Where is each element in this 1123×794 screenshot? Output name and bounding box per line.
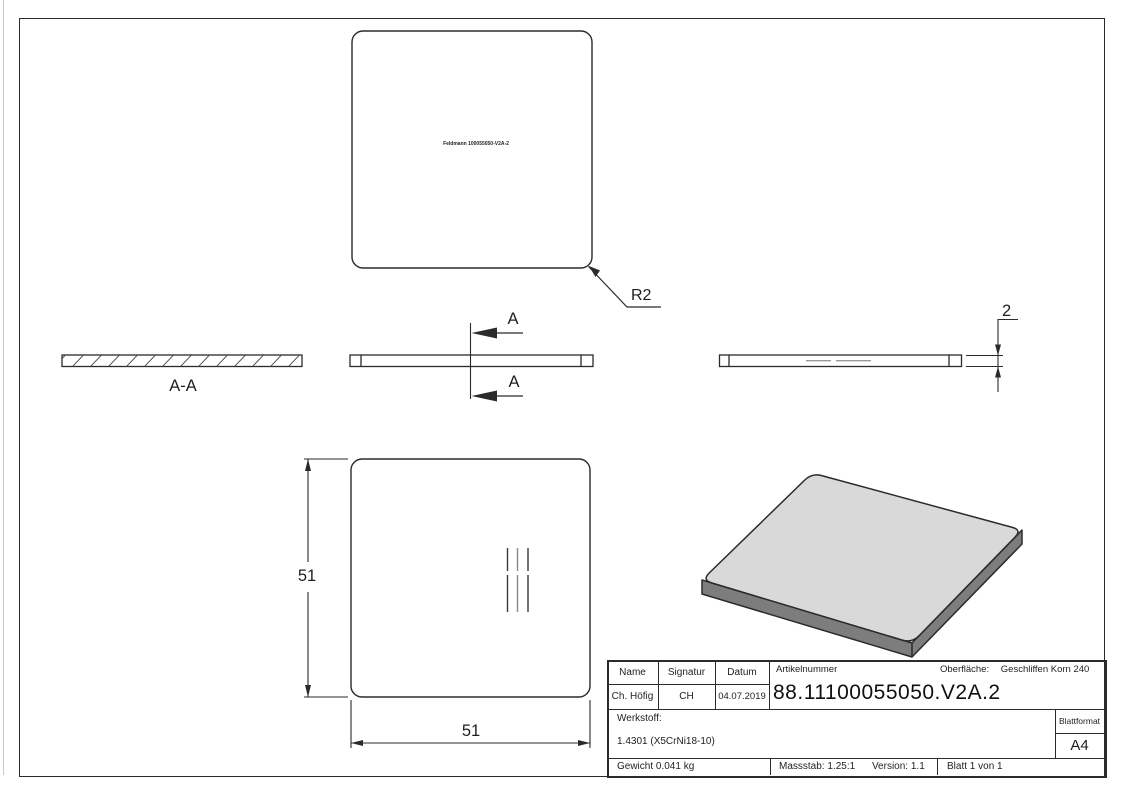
edge-view-with-cut — [350, 323, 593, 402]
tb-datum-header: Datum — [715, 660, 769, 684]
tb-massstab-version: Massstab: 1.25:1 Version: 1.1 — [779, 761, 925, 772]
thickness-value: 2 — [1002, 302, 1011, 321]
tb-blattformat-label: Blattformat — [1055, 709, 1104, 733]
cut-label-bottom: A — [508, 373, 519, 392]
height-value: 51 — [298, 567, 316, 586]
tb-artikelnummer-label: Artikelnummer — [776, 664, 837, 675]
tb-line — [607, 758, 1104, 759]
tb-oberflaeche: Oberfläche: Geschliffen Korn 240 — [940, 664, 1089, 675]
tb-gewicht: Gewicht 0.041 kg — [617, 761, 694, 772]
tb-oberflaeche-value: Geschliffen Korn 240 — [1001, 664, 1090, 675]
tb-artikelnummer-value: 88.11100055050.V2A.2 — [773, 681, 1001, 705]
tb-signatur-value: CH — [658, 684, 715, 709]
laser-marking-text: Feldmann 100055050-V2A-2 — [443, 141, 509, 147]
top-view — [352, 31, 592, 268]
cut-label-top: A — [507, 310, 518, 329]
iso-top-face — [706, 475, 1018, 641]
top-view-outline — [352, 31, 592, 268]
section-view — [54, 355, 302, 368]
radius-leader-arrow — [589, 266, 600, 277]
tb-datum-value: 04.07.2019 — [715, 684, 769, 709]
cut-arrow-bottom — [472, 391, 498, 402]
tb-line — [607, 709, 1104, 710]
tb-version: Version: 1.1 — [872, 761, 925, 772]
drawing-sheet: Feldmann 100055050-V2A-2 R2 A-A A A 2 51… — [0, 0, 1123, 794]
front-marking-lines — [508, 548, 529, 612]
radius-label: R2 — [631, 287, 651, 305]
tb-werkstoff-value: 1.4301 (X5CrNi18-10) — [617, 736, 715, 747]
edge-view-thickness — [720, 319, 1019, 392]
front-view-outline — [351, 459, 590, 697]
section-label: A-A — [169, 377, 197, 396]
cut-arrow-top — [472, 328, 498, 339]
thickness-dimension — [966, 319, 1018, 392]
edge-view-outline — [350, 355, 593, 367]
isometric-view — [702, 475, 1022, 657]
tb-line — [769, 660, 770, 709]
tb-blattformat-value: A4 — [1055, 733, 1104, 758]
tb-name-value: Ch. Höfig — [607, 684, 658, 709]
tb-line — [770, 758, 771, 775]
tb-werkstoff-label: Werkstoff: — [617, 713, 662, 724]
tb-name-header: Name — [607, 660, 658, 684]
front-view — [304, 459, 590, 748]
tb-massstab: Massstab: 1.25:1 — [779, 761, 855, 772]
tb-oberflaeche-label: Oberfläche: — [940, 664, 989, 675]
tb-line — [937, 758, 938, 775]
width-value: 51 — [462, 722, 480, 741]
tb-signatur-header: Signatur — [658, 660, 715, 684]
tb-blatt: Blatt 1 von 1 — [947, 761, 1003, 772]
